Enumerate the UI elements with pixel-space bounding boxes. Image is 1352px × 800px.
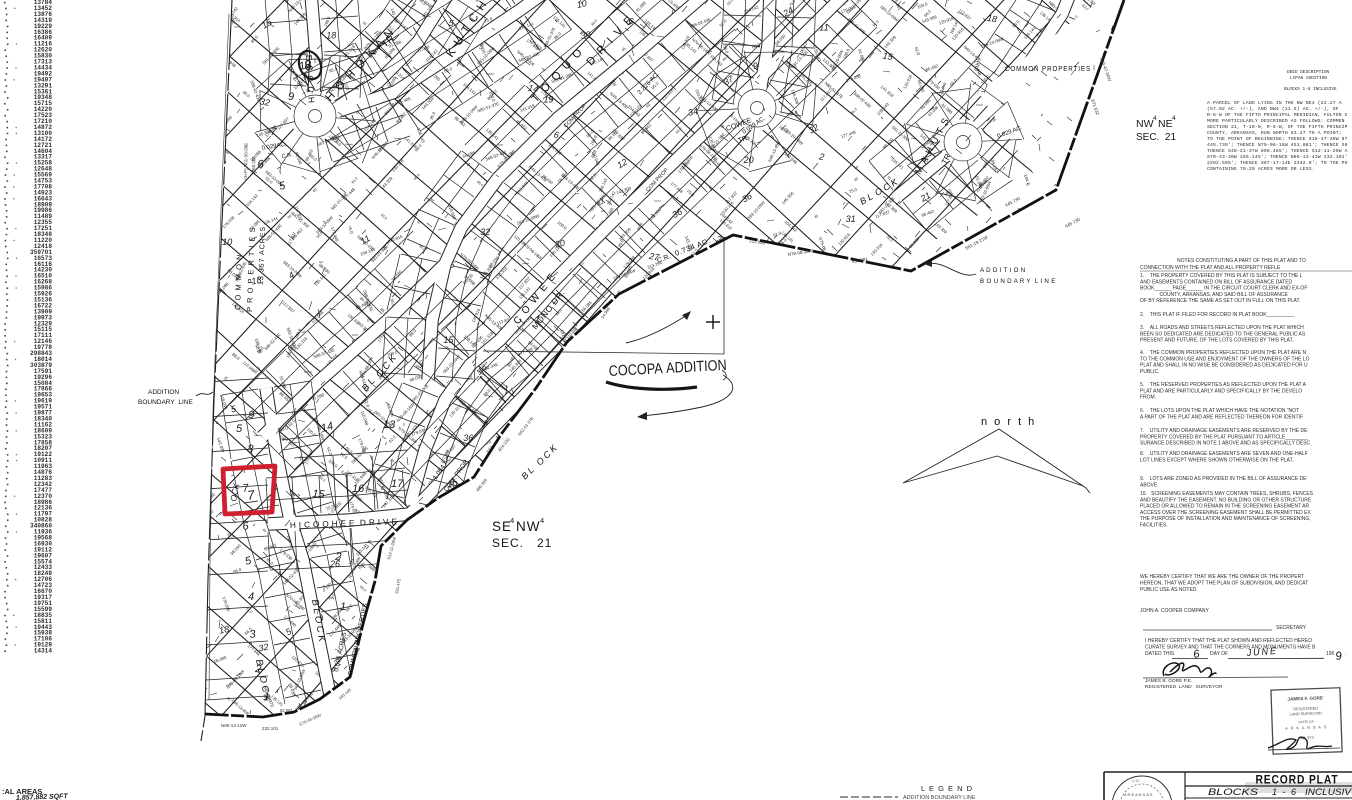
svg-text:COUNTY, ARKANSAS, RUN NORTH 63: COUNTY, ARKANSAS, RUN NORTH 63.27 TO A P… [1207, 130, 1342, 136]
svg-text:32: 32 [480, 227, 490, 237]
svg-text:PROPERTY COVERED BY THE PLAT P: PROPERTY COVERED BY THE PLAT PURSUANT TO… [1140, 434, 1308, 440]
svg-text:4: 4 [510, 516, 514, 525]
svg-text:FROM.: FROM. [1140, 395, 1156, 401]
svg-text:S70-43-30W 155.145'; THENCE N8: S70-43-30W 155.145'; THENCE N86-13-42W 2… [1207, 154, 1348, 160]
svg-text:10: 10 [222, 237, 232, 247]
svg-text:1 - 6: 1 - 6 [1272, 787, 1298, 797]
svg-text:18: 18 [218, 624, 230, 636]
svg-text:15: 15 [312, 488, 326, 501]
svg-text:1,857,882 SQFT: 1,857,882 SQFT [16, 793, 69, 800]
svg-text:PLACED OR ALLOWED TO REMAIN IN: PLACED OR ALLOWED TO REMAIN IN THE SCREE… [1140, 504, 1310, 510]
svg-text:32: 32 [259, 96, 271, 108]
svg-text:2292.505'; THENCE S87-17-14E 2: 2292.505'; THENCE S87-17-14E 2342.0'; TO… [1207, 160, 1348, 166]
svg-text:TO THE COMMON USE AND ENJOYMEN: TO THE COMMON USE AND ENJOYMENT OF THE O… [1140, 356, 1310, 362]
svg-text:NW: NW [516, 519, 541, 534]
svg-text:ADDITION BOUNDARY LINE: ADDITION BOUNDARY LINE [903, 795, 976, 800]
svg-text:B O U N D A R Y L I N E: B O U N D A R Y L I N E [980, 278, 1056, 285]
svg-text:BOOK______ PAGE______ IN THE C: BOOK______ PAGE______ IN THE CIRCUIT COU… [1140, 286, 1307, 292]
svg-text:5: 5 [236, 423, 243, 435]
svg-text:A PART OF THE PLAT AND ARE REF: A PART OF THE PLAT AND ARE REFLECTED THE… [1140, 414, 1303, 420]
svg-text:THE PURPOSE OF INSTALLATION AN: THE PURPOSE OF INSTALLATION AND MAINTENA… [1140, 516, 1311, 522]
svg-text:15: 15 [443, 335, 454, 345]
svg-text:R-6-W OF THE FIFTH PRINCIPAL M: R-6-W OF THE FIFTH PRINCIPAL MERIDIAN, F… [1207, 112, 1348, 118]
svg-text:LOT LINES EXCEPT WHERE SHOWN O: LOT LINES EXCEPT WHERE SHOWN OTHERWISE O… [1140, 457, 1293, 463]
svg-text:COUNTY, ARKANSAS, AND SAID BIL: COUNTY, ARKANSAS, AND SAID BILL OF ASSUR… [1140, 292, 1288, 298]
svg-text:PRESENT AND FUTURE, OF THE LOT: PRESENT AND FUTURE, OF THE LOTS COVERED … [1140, 338, 1293, 344]
svg-text:14314: 14314 [34, 648, 53, 655]
svg-text:232.101: 232.101 [262, 726, 279, 731]
svg-text:31: 31 [846, 214, 856, 224]
svg-text:AND BEAUTIFY THE EASEMENT. NO: AND BEAUTIFY THE EASEMENT. NO BUILDING O… [1140, 497, 1312, 503]
svg-text:OF BY REFERENCE THE SAME AS SE: OF BY REFERENCE THE SAME AS SET OUT IN F… [1140, 298, 1300, 304]
svg-text:AND EASEMENTS CONTAINED ON BIL: AND EASEMENTS CONTAINED ON BILL OF ASSUR… [1140, 279, 1293, 285]
svg-text:17: 17 [391, 478, 404, 490]
svg-text:n o r t h: n o r t h [981, 416, 1036, 428]
svg-text:32: 32 [258, 642, 270, 654]
svg-text:PUBLIC USE AS NOTED.: PUBLIC USE AS NOTED. [1140, 587, 1198, 593]
svg-text:CURATE SURVEY AND THAT THE COR: CURATE SURVEY AND THAT THE CORNERS AND M… [1145, 645, 1316, 651]
svg-text:(57.02 AC. +/-), AND NW4 (11: (57.02 AC. +/-), AND NW4 (11.5) AC. +/-)… [1207, 106, 1339, 112]
svg-text:DEED DESCRIPTION: DEED DESCRIPTION [1287, 70, 1330, 75]
svg-text:REGISTERED LAND SURVEYOR: REGISTERED LAND SURVEYOR [1145, 684, 1223, 690]
svg-text:9. LOTS ARE ZONED AS PROVID: 9. LOTS ARE ZONED AS PROVIDED IN THE BIL… [1140, 476, 1307, 482]
svg-text:THENCE S48-21-37W 890.485'; TH: THENCE S48-21-37W 890.485'; THENCE S12-1… [1207, 148, 1348, 154]
svg-text:13: 13 [383, 419, 396, 431]
svg-text:7. UTILITY AND DRAINAGE EAS: 7. UTILITY AND DRAINAGE EASEMENTS ARE RE… [1140, 428, 1308, 434]
svg-text:196: 196 [1326, 651, 1335, 657]
svg-text:2258.368: 2258.368 [251, 156, 256, 175]
svg-text:COMMON PROPERTIES: COMMON PROPERTIES [1005, 66, 1091, 73]
svg-text:DATED THIS: DATED THIS [1145, 651, 1175, 657]
svg-text:STATE OF: STATE OF [1298, 720, 1313, 725]
svg-text:N86-13-12W: N86-13-12W [221, 723, 247, 728]
svg-text:HEREON, THAT WE ADOPT THE PLAN: HEREON, THAT WE ADOPT THE PLAN OF SUBDIV… [1140, 581, 1308, 587]
svg-text:LIPAN ADDITION: LIPAN ADDITION [1290, 76, 1327, 81]
svg-text:JAMES B. GORE P.E.: JAMES B. GORE P.E. [1145, 678, 1192, 684]
svg-text:WE HEREBY CERTIFY THAT WE ARE: WE HEREBY CERTIFY THAT WE ARE THE OWNER … [1140, 574, 1304, 580]
svg-text:18: 18 [326, 30, 336, 40]
svg-text:62.081: 62.081 [280, 708, 293, 713]
svg-text:9: 9 [288, 91, 294, 103]
svg-text:.: . [1345, 651, 1346, 657]
svg-text:FACILITIES.: FACILITIES. [1140, 523, 1168, 529]
svg-text:SECRETARY: SECRETARY [1276, 625, 1307, 631]
svg-text:DAY OF: DAY OF [1210, 651, 1228, 657]
svg-text:A D D I T I O N: A D D I T I O N [980, 267, 1026, 274]
svg-text:I HEREBY CERTIFY THAT THE PLAT: I HEREBY CERTIFY THAT THE PLAT SHOWN AND… [1145, 638, 1312, 644]
svg-text:18: 18 [986, 13, 998, 25]
svg-text:4. THE COMMON PROPERTIES RE: 4. THE COMMON PROPERTIES REFLECTED UPON … [1140, 350, 1306, 356]
svg-text:6. THE LOTS UPON THE PLAT W: 6. THE LOTS UPON THE PLAT WHICH HAVE THE… [1140, 408, 1299, 414]
svg-text:16: 16 [352, 483, 365, 495]
svg-text:4: 4 [1172, 115, 1176, 122]
svg-text:1: 1 [340, 601, 346, 613]
svg-text:ACCESS OVER THE SCREENING EASE: ACCESS OVER THE SCREENING EASEMENT SHALL… [1140, 510, 1311, 516]
svg-text:L E G E N D: L E G E N D [921, 784, 973, 793]
svg-text:SEC. 21: SEC. 21 [1136, 132, 1176, 143]
svg-text:2. THIS PLAT IF FILED FOR R: 2. THIS PLAT IF FILED FOR RECORD IN PLAT… [1140, 312, 1295, 318]
svg-text:NE: NE [1158, 118, 1173, 130]
svg-text:BEEN SO DEDICATED ARE DEDICATE: BEEN SO DEDICATED ARE DEDICATED TO THE G… [1140, 331, 1306, 337]
svg-text:4: 4 [540, 516, 544, 525]
svg-text:JOHN A. COOPER COMPANY: JOHN A. COOPER COMPANY [1140, 608, 1209, 614]
svg-text:TO THE POINT OF BEGINNING; THE: TO THE POINT OF BEGINNING; THENCE S16-47… [1207, 136, 1348, 142]
svg-text:5. THE RESERVED PROPERTIES: 5. THE RESERVED PROPERTIES AS REFLECTED … [1140, 382, 1307, 388]
svg-text:PLAT AND ARE PARTICULARLY AND: PLAT AND ARE PARTICULARLY AND SPECIFICAL… [1140, 388, 1302, 394]
svg-text:A R E A N S A S: A R E A N S A S [1124, 792, 1153, 797]
svg-text:ABOVE.: ABOVE. [1140, 482, 1159, 488]
svg-text:MORE PARTICULARLY DESCRIBED AS: MORE PARTICULARLY DESCRIBED AS FOLLOWS: … [1207, 118, 1345, 124]
svg-text:445.730'; THENCE N79-08-18W 45: 445.730'; THENCE N79-08-18W 451.081'; TH… [1207, 142, 1348, 148]
svg-text:CONNECTION WITH THE PLAT AND A: CONNECTION WITH THE PLAT AND ALL PROPERT… [1140, 265, 1281, 271]
svg-text:ADDITION: ADDITION [148, 389, 179, 396]
svg-text:2: 2 [334, 551, 342, 564]
svg-text:SE: SE [492, 519, 512, 534]
svg-text:1. THE PROPERTY COVERED BY: 1. THE PROPERTY COVERED BY THIS PLAT IS … [1140, 273, 1303, 279]
svg-text:10. SCREENING EASEMENTS MAY: 10. SCREENING EASEMENTS MAY CONTAIN TREE… [1140, 491, 1314, 497]
svg-text:3. ALL ROADS AND STREETS RE: 3. ALL ROADS AND STREETS REFLECTED UPON … [1140, 325, 1304, 331]
svg-text:BLOCKS 1-6 INCLUSIVE: BLOCKS 1-6 INCLUSIVE [1284, 87, 1337, 92]
svg-text:PUBLIC.: PUBLIC. [1140, 369, 1159, 375]
svg-text:A PARCEL OF LAND LYING IN THE: A PARCEL OF LAND LYING IN THE NW NE4 (22… [1207, 100, 1342, 106]
svg-text:PLAT AND SHALL IN NO WISE BE C: PLAT AND SHALL IN NO WISE BE CONSIDERED … [1140, 363, 1308, 369]
svg-text:4: 4 [248, 591, 254, 603]
svg-text:JUNE: JUNE [1245, 646, 1278, 659]
svg-text:SECTION 21, T-19-N, R-6-W, OF: SECTION 21, T-19-N, R-6-W, OF THE FIFTH … [1207, 124, 1348, 130]
svg-text:SEC. 21: SEC. 21 [492, 536, 552, 550]
svg-text:INCLUSIV: INCLUSIV [1305, 787, 1352, 797]
svg-text:BLOCKS: BLOCKS [1208, 787, 1258, 797]
svg-text:(S+P) N01-00-09E: (S+P) N01-00-09E [243, 143, 249, 180]
svg-text:20: 20 [743, 155, 754, 165]
svg-text:SURANCE DESCRIBED IN NOTE 1 AB: SURANCE DESCRIBED IN NOTE 1 ABOVE AND AS… [1140, 441, 1311, 447]
svg-text:NW: NW [1136, 118, 1154, 130]
svg-text:9: 9 [248, 409, 255, 421]
svg-text:NOTES CONSTITUTING A PART OF T: NOTES CONSTITUTING A PART OF THIS PLAT A… [1177, 258, 1306, 264]
svg-text:RECORD PLAT: RECORD PLAT [1256, 773, 1339, 787]
svg-text:CONTAINING 70.20 ACRES MORE OR: CONTAINING 70.20 ACRES MORE OR LESS. [1207, 166, 1315, 172]
svg-text:4: 4 [1153, 115, 1157, 122]
svg-text:BOUNDARY LINE: BOUNDARY LINE [138, 399, 193, 406]
svg-text:8. UTILITY AND DRAINAGE EAS: 8. UTILITY AND DRAINAGE EASEMENTS ARE SE… [1140, 451, 1308, 457]
svg-text:· L O ·: · L O · [1130, 778, 1141, 783]
